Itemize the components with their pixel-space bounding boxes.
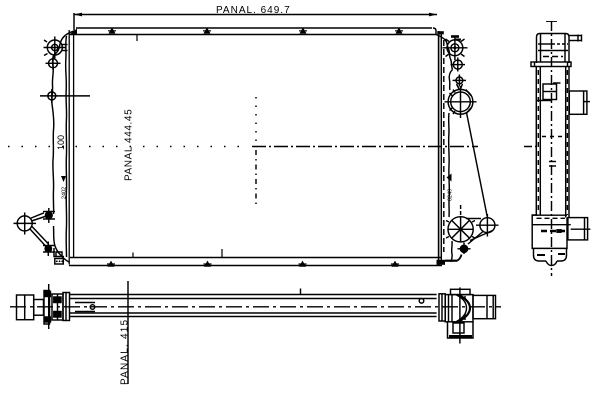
svg-text:0249: 0249 — [448, 189, 454, 201]
svg-text:2402: 2402 — [62, 187, 68, 199]
svg-text:PANAL 444.45: PANAL 444.45 — [124, 109, 135, 181]
svg-text:100: 100 — [56, 135, 66, 150]
svg-text:PANAL. 649.7: PANAL. 649.7 — [216, 5, 291, 16]
svg-text:PANAL. 415: PANAL. 415 — [120, 319, 131, 385]
